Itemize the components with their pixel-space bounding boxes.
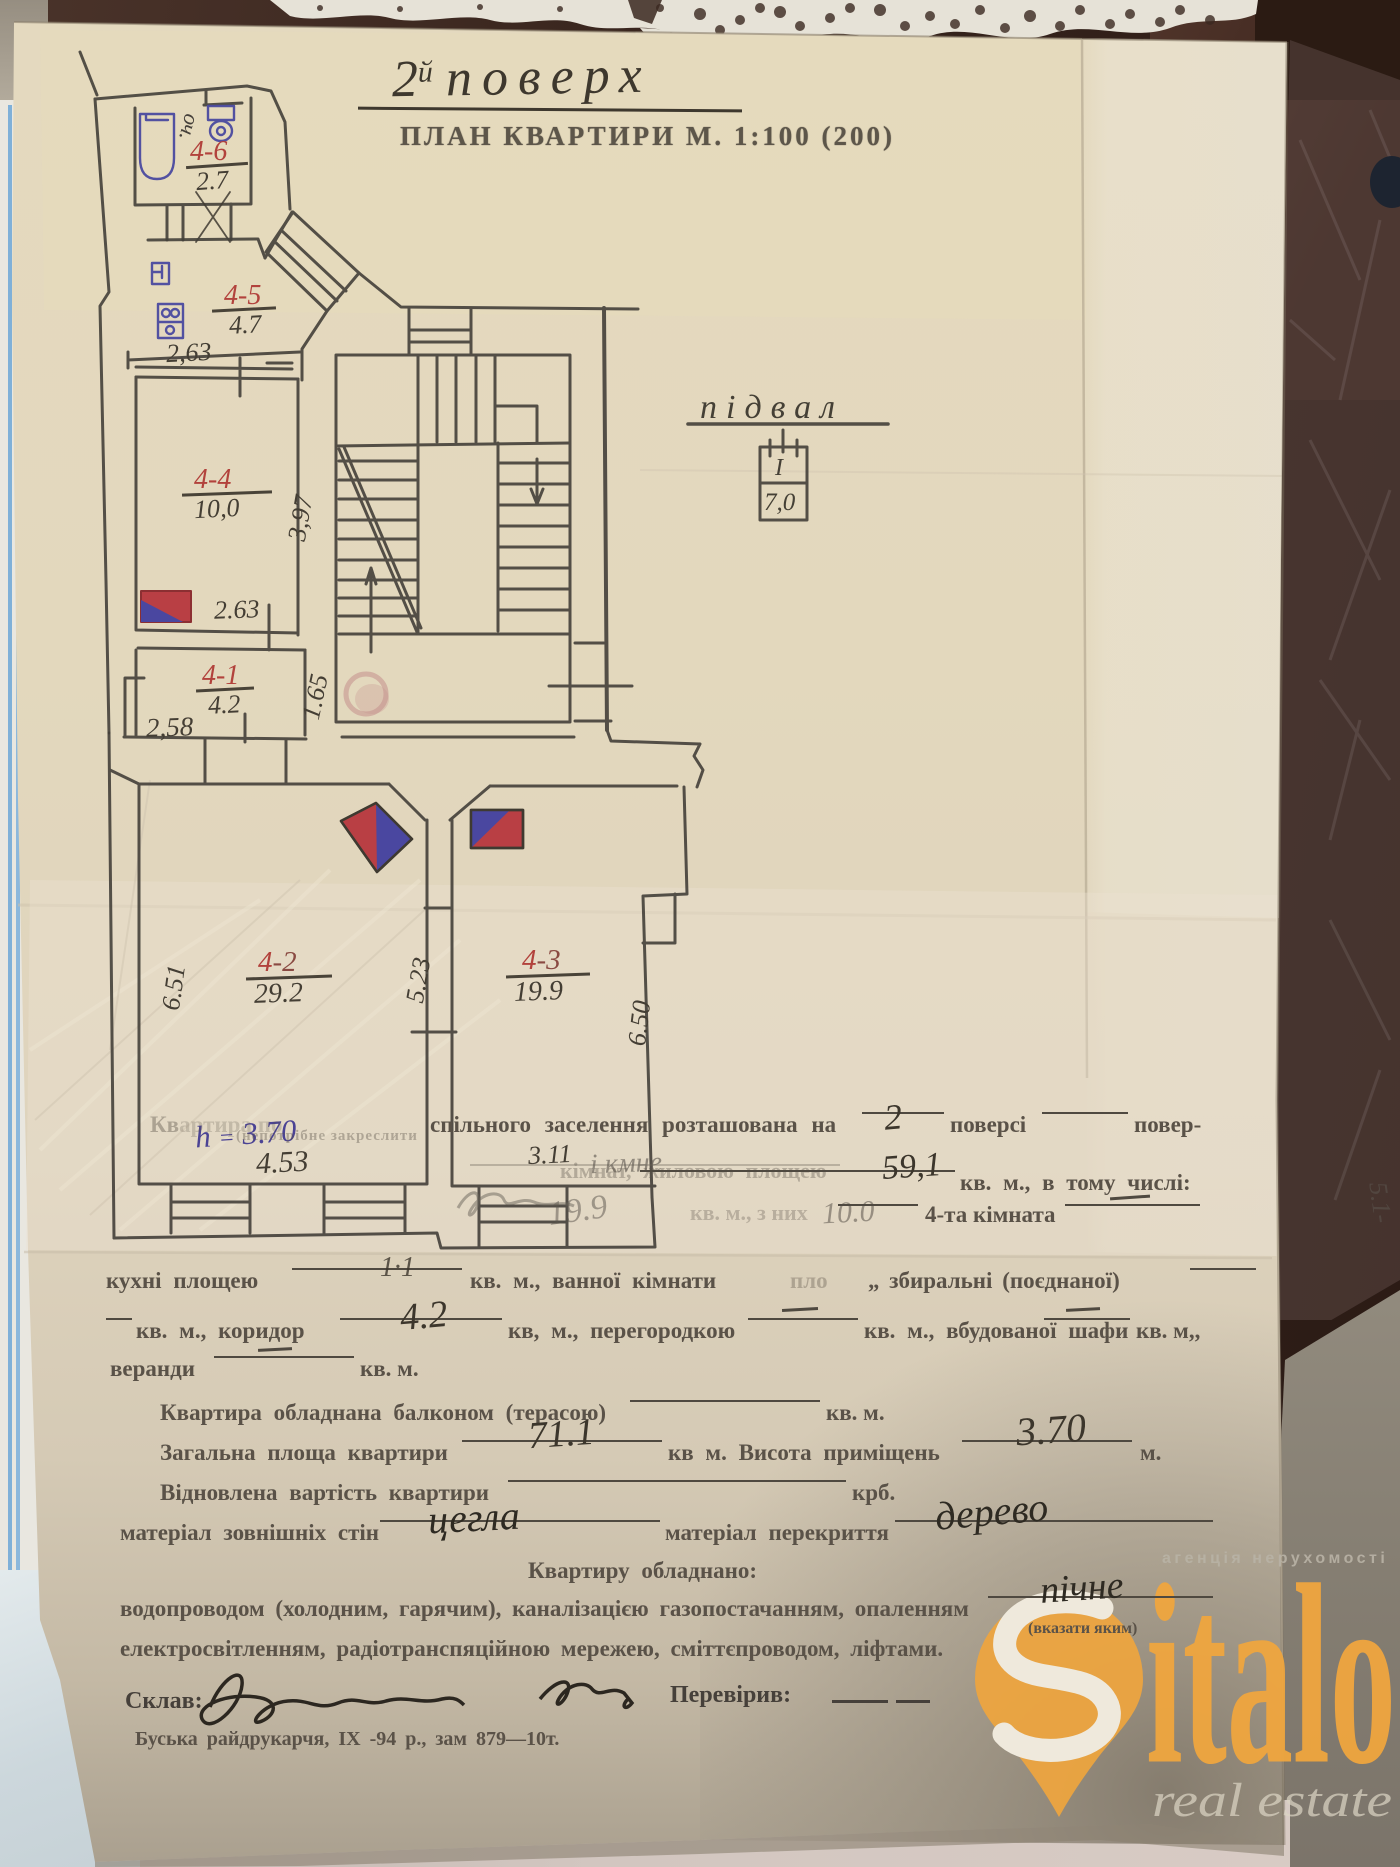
svg-text:real estate: real estate [1152, 1774, 1392, 1827]
